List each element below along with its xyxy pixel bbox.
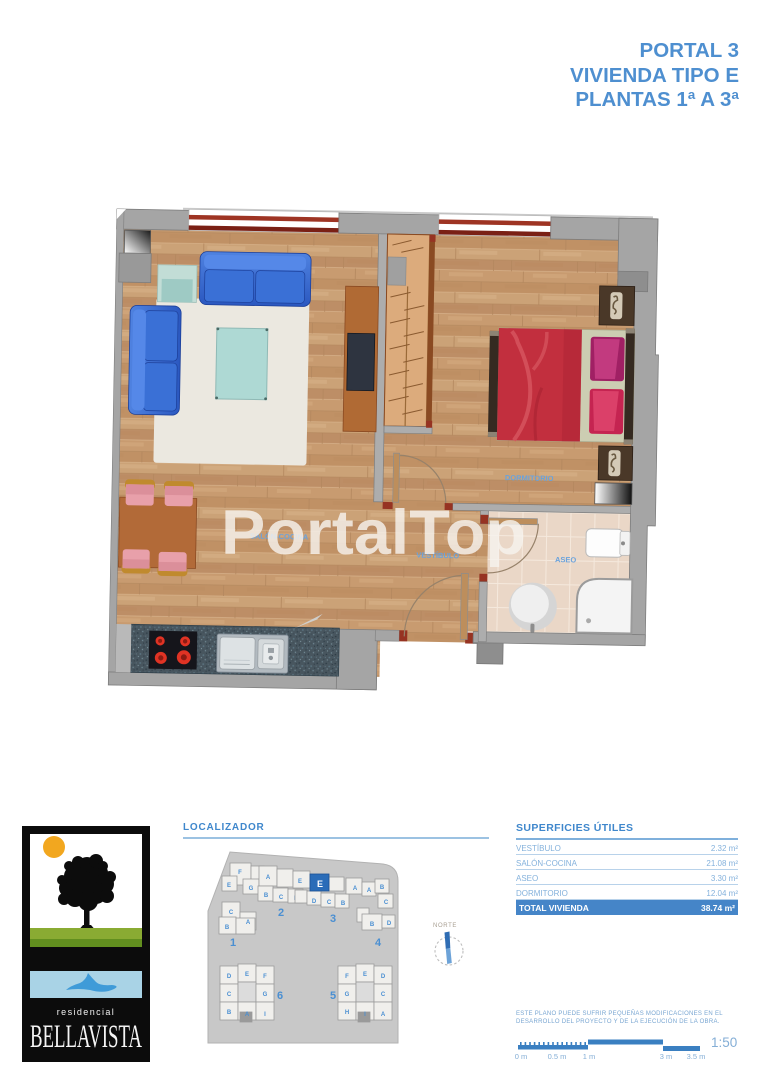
svg-text:F: F (263, 974, 267, 980)
svg-text:D: D (387, 921, 392, 927)
svg-text:H: H (345, 1010, 349, 1016)
svg-text:4: 4 (375, 937, 382, 949)
svg-text:E: E (245, 972, 249, 978)
svg-text:3 m: 3 m (660, 1052, 673, 1061)
svg-text:C: C (381, 992, 386, 998)
svg-text:1 m: 1 m (583, 1052, 596, 1061)
svg-text:B: B (227, 1010, 232, 1016)
svg-text:NORTE: NORTE (433, 923, 457, 929)
svg-text:B: B (380, 885, 385, 891)
svg-text:3: 3 (330, 913, 336, 925)
svg-text:A: A (246, 920, 251, 926)
svg-text:6: 6 (277, 990, 283, 1002)
svg-text:1: 1 (230, 937, 236, 949)
svg-text:B: B (341, 901, 346, 907)
svg-text:D: D (227, 974, 232, 980)
svg-text:C: C (327, 900, 332, 906)
svg-text:D: D (381, 974, 386, 980)
svg-text:A: A (367, 888, 372, 894)
svg-text:0 m: 0 m (515, 1052, 528, 1061)
svg-text:G: G (249, 886, 254, 892)
svg-text:G: G (345, 992, 350, 998)
svg-text:F: F (345, 974, 349, 980)
svg-text:E: E (317, 879, 323, 889)
svg-text:A: A (245, 1012, 250, 1018)
svg-text:D: D (312, 899, 317, 905)
svg-text:C: C (279, 895, 284, 901)
svg-text:A: A (353, 886, 358, 892)
svg-text:G: G (263, 992, 268, 998)
svg-text:E: E (363, 972, 367, 978)
svg-text:F: F (238, 870, 242, 876)
svg-text:C: C (227, 992, 232, 998)
svg-text:C: C (384, 900, 389, 906)
svg-text:3.5 m: 3.5 m (687, 1052, 706, 1061)
svg-text:5: 5 (330, 990, 336, 1002)
svg-text:2: 2 (278, 907, 284, 919)
svg-text:B: B (370, 922, 375, 928)
svg-text:E: E (298, 879, 302, 885)
svg-text:A: A (381, 1012, 386, 1018)
svg-text:B: B (225, 925, 230, 931)
svg-text:A: A (266, 875, 271, 881)
svg-text:C: C (229, 910, 234, 916)
svg-text:E: E (227, 883, 231, 889)
svg-text:0.5 m: 0.5 m (548, 1052, 567, 1061)
svg-text:B: B (264, 893, 269, 899)
svg-text:1:50: 1:50 (711, 1035, 737, 1050)
